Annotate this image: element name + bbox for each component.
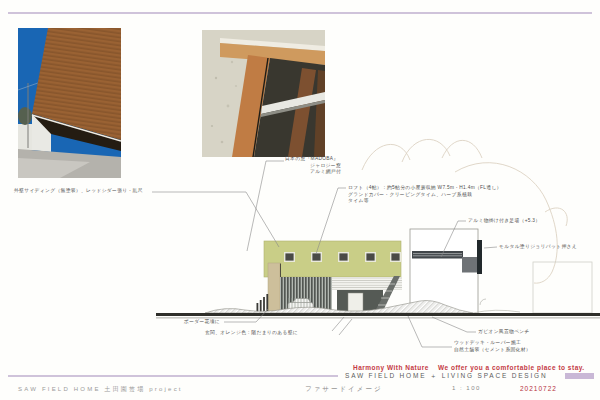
scale-label: 1 : 100 <box>452 385 481 391</box>
dark-pillar <box>477 240 482 274</box>
louver-bar <box>412 251 463 259</box>
date-label: 20210722 <box>520 385 557 392</box>
tan-column <box>268 263 280 313</box>
gray-panel <box>462 257 478 273</box>
annotation-entrance: 玄関、オレンジ色：陽だまりのある壁に <box>205 330 298 337</box>
brand-swatch <box>565 373 594 379</box>
annotation-mortar: モルタル塗りジョリパット押さえ <box>499 244 577 251</box>
presentation-board: 外壁サイディング（無塗装）、レッドシダー張り・乱尺 日本の窓『MADOBA』 ジ… <box>0 0 600 400</box>
ground-line-2 <box>156 318 600 319</box>
groundcover-edge <box>473 310 520 313</box>
footer-rule <box>8 375 338 378</box>
annotation-madoba: 日本の窓『MADOBA』 ジャロジー窓 アルミ網戸付 <box>285 156 341 176</box>
annotation-text: 外壁サイディング（無塗装）、レッドシダー張り・乱尺 <box>14 188 143 195</box>
annotation-border: ボーダー花壇に <box>184 319 220 326</box>
drawing-title: ファサードイメージ <box>305 385 383 394</box>
brand-line: SAW FIELD HOME ＋ LIVING SPACE DESIGN <box>345 372 547 381</box>
tagline-2: We offer you a comfortable place to stay… <box>438 364 585 371</box>
annotation-gabion: ガビオン風置物ベンチ <box>478 329 530 336</box>
annotation-siding: 外壁サイディング（無塗装）、レッドシダー張り・乱尺 <box>14 188 143 195</box>
annotation-alumi: アルミ物掛け付き足場（+5.3） <box>468 218 540 225</box>
entry-door <box>348 293 363 314</box>
tagline-1: Harmony With Nature <box>353 364 429 371</box>
fence-bars <box>257 294 269 313</box>
neighbor-outline <box>533 262 592 313</box>
door-swing-arc <box>480 299 486 305</box>
ground-line <box>156 313 600 316</box>
project-name: SAW FIELD HOME 土田園芸場 project <box>18 385 183 394</box>
annotation-loft: ロフト（4帖）：約5帖分の小屋裏収納 W7.5m・H1.4m（FL通し） グラン… <box>348 185 502 205</box>
annotation-wooddeck: ウッドデッキ・ルーバー施工 自然土舗装（セメント系固化材） <box>454 340 531 353</box>
